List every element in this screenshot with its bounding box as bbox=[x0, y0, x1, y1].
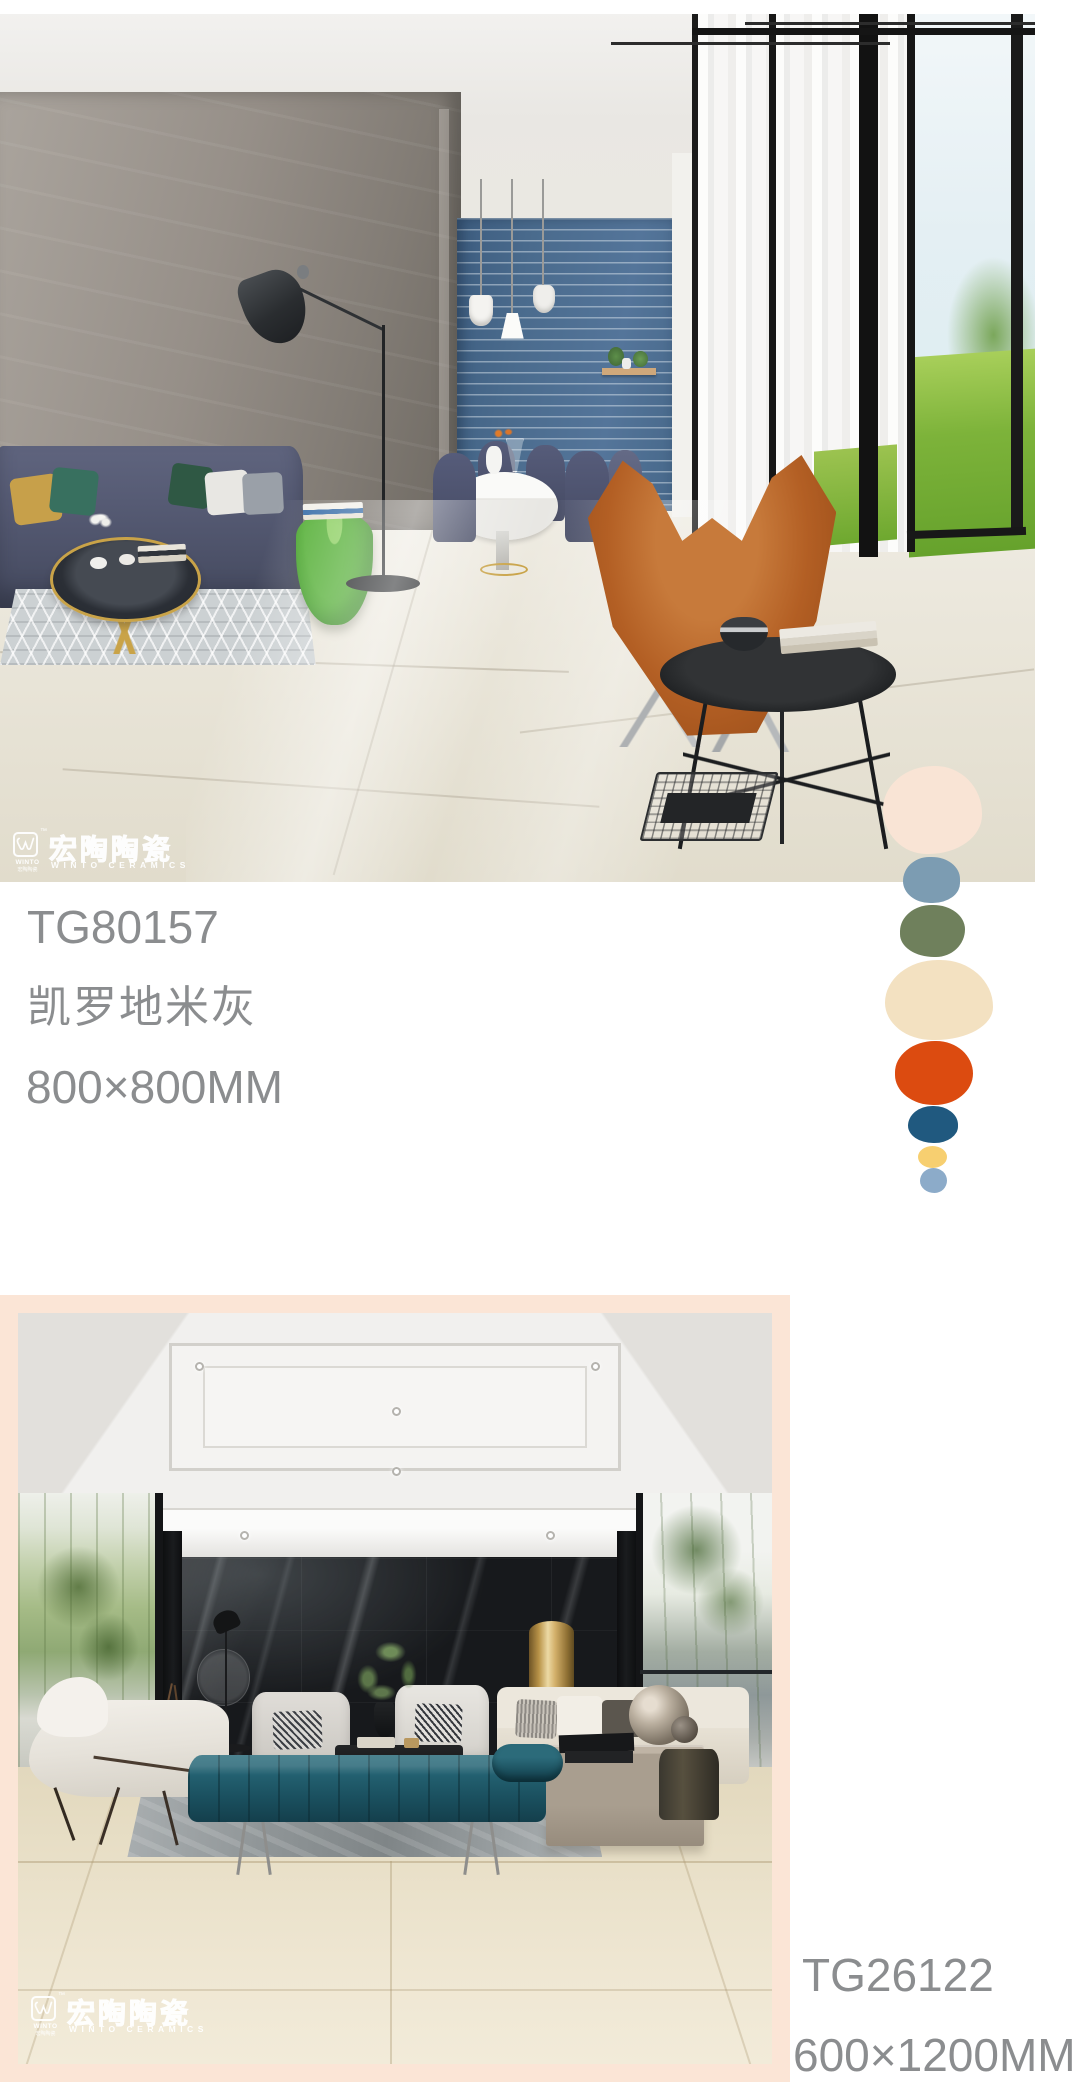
product2-lifestyle-photo: ™ WINTO 宏陶陶瓷 宏陶陶瓷 WINTO CERAMICS bbox=[18, 1313, 772, 2064]
floor-lamp-pole bbox=[382, 325, 385, 580]
downlight bbox=[392, 1407, 401, 1416]
book-stack bbox=[303, 502, 364, 521]
shelf-vase bbox=[622, 358, 631, 369]
teal-bolster-pillow bbox=[492, 1744, 564, 1782]
patterned-cushion bbox=[272, 1710, 322, 1749]
curtain-rod bbox=[745, 22, 1035, 25]
book-stack bbox=[137, 544, 185, 564]
winto-logo-mark bbox=[31, 1996, 56, 2021]
window-frame-bar bbox=[692, 14, 697, 561]
downlight bbox=[591, 1362, 600, 1371]
color-swatch-sky-blue bbox=[920, 1168, 947, 1193]
throw-pillow bbox=[557, 1696, 602, 1737]
brand-name-en: WINTO CERAMICS bbox=[69, 2024, 208, 2034]
floor-joint bbox=[390, 1861, 392, 2064]
product2-photo-frame: ™ WINTO 宏陶陶瓷 宏陶陶瓷 WINTO CERAMICS bbox=[0, 1295, 790, 2082]
basket-item bbox=[661, 793, 757, 823]
wall-shelf bbox=[602, 368, 656, 375]
color-swatch-orange bbox=[895, 1041, 973, 1105]
window-frame-bar bbox=[1011, 14, 1022, 535]
bamboo-foliage bbox=[697, 1568, 765, 1636]
trademark-symbol: ™ bbox=[40, 828, 47, 835]
color-swatch-blush bbox=[883, 766, 982, 854]
bamboo-foliage bbox=[78, 1613, 138, 1681]
table-decor bbox=[357, 1737, 395, 1748]
cup bbox=[90, 557, 107, 569]
color-swatch-navy bbox=[908, 1106, 958, 1143]
table-decor bbox=[404, 1738, 419, 1748]
product1-lifestyle-photo: ™ WINTO 宏陶陶瓷 宏陶陶瓷 WINTO CERAMICS bbox=[0, 14, 1035, 882]
pendant-cord bbox=[511, 179, 513, 314]
color-swatch-cream bbox=[885, 960, 993, 1040]
pendant-cord bbox=[542, 179, 544, 285]
pendant-lamp bbox=[469, 295, 493, 326]
table-flowers bbox=[491, 426, 517, 441]
floor-lamp-joint bbox=[297, 265, 309, 279]
shelf-plant bbox=[633, 351, 647, 367]
floor-lamp-disc bbox=[197, 1649, 250, 1705]
product2-size: 600×1200MM bbox=[793, 2030, 1076, 2081]
plant-vase bbox=[374, 1702, 395, 1737]
product2-code: TG26122 bbox=[802, 1950, 994, 2001]
throw-pillow bbox=[242, 472, 284, 515]
logo-word: WINTO bbox=[13, 859, 42, 866]
window-frame-bar bbox=[692, 28, 1035, 35]
throw-pillow bbox=[515, 1699, 558, 1739]
palette-dots bbox=[880, 763, 996, 1195]
pendant-lamp bbox=[533, 285, 555, 313]
table-vase bbox=[486, 446, 502, 474]
winto-logo-watermark: ™ WINTO 宏陶陶瓷 宏陶陶瓷 WINTO CERAMICS bbox=[31, 1996, 261, 2042]
downlight bbox=[546, 1531, 555, 1540]
book-stack bbox=[565, 1751, 633, 1763]
winto-logo-watermark: ™ WINTO 宏陶陶瓷 宏陶陶瓷 WINTO CERAMICS bbox=[13, 832, 243, 878]
product1-size: 800×800MM bbox=[26, 1062, 283, 1113]
w-swoosh-icon bbox=[34, 2000, 53, 2016]
pendant-cord bbox=[480, 179, 482, 297]
winto-logo-mark bbox=[13, 832, 38, 857]
wood-drum-table bbox=[659, 1749, 719, 1820]
downlight bbox=[195, 1362, 204, 1371]
window-mullion bbox=[640, 1670, 772, 1675]
sphere-decor bbox=[671, 1716, 698, 1743]
logo-word-cn: 宏陶陶瓷 bbox=[13, 866, 42, 873]
white-flowers bbox=[83, 509, 118, 533]
product1-code: TG80157 bbox=[27, 902, 219, 953]
tile-catalog-page: ™ WINTO 宏陶陶瓷 宏陶陶瓷 WINTO CERAMICS TG80157… bbox=[0, 0, 1080, 2082]
logo-word-cn: 宏陶陶瓷 bbox=[31, 2030, 60, 2037]
downlight bbox=[392, 1467, 401, 1476]
cup bbox=[119, 554, 135, 565]
floor-joint bbox=[18, 1989, 772, 1991]
dining-chair bbox=[433, 453, 476, 542]
w-swoosh-icon bbox=[16, 836, 35, 852]
trademark-symbol: ™ bbox=[58, 1992, 65, 1999]
logo-word: WINTO bbox=[31, 2023, 60, 2030]
curtain-rod bbox=[611, 42, 890, 45]
floor-lamp-base bbox=[346, 575, 421, 592]
color-swatch-yellow bbox=[918, 1146, 947, 1168]
color-swatch-steel-blue bbox=[903, 857, 960, 903]
brand-name-en: WINTO CERAMICS bbox=[51, 860, 190, 870]
dining-table-base bbox=[480, 563, 528, 576]
floor-joint bbox=[18, 1861, 772, 1863]
product1-name: 凯罗地米灰 bbox=[27, 984, 257, 1032]
black-side-table bbox=[660, 637, 896, 712]
color-swatch-olive bbox=[900, 905, 965, 957]
window-frame-bar bbox=[907, 14, 915, 552]
window-frame-bar bbox=[859, 14, 878, 557]
